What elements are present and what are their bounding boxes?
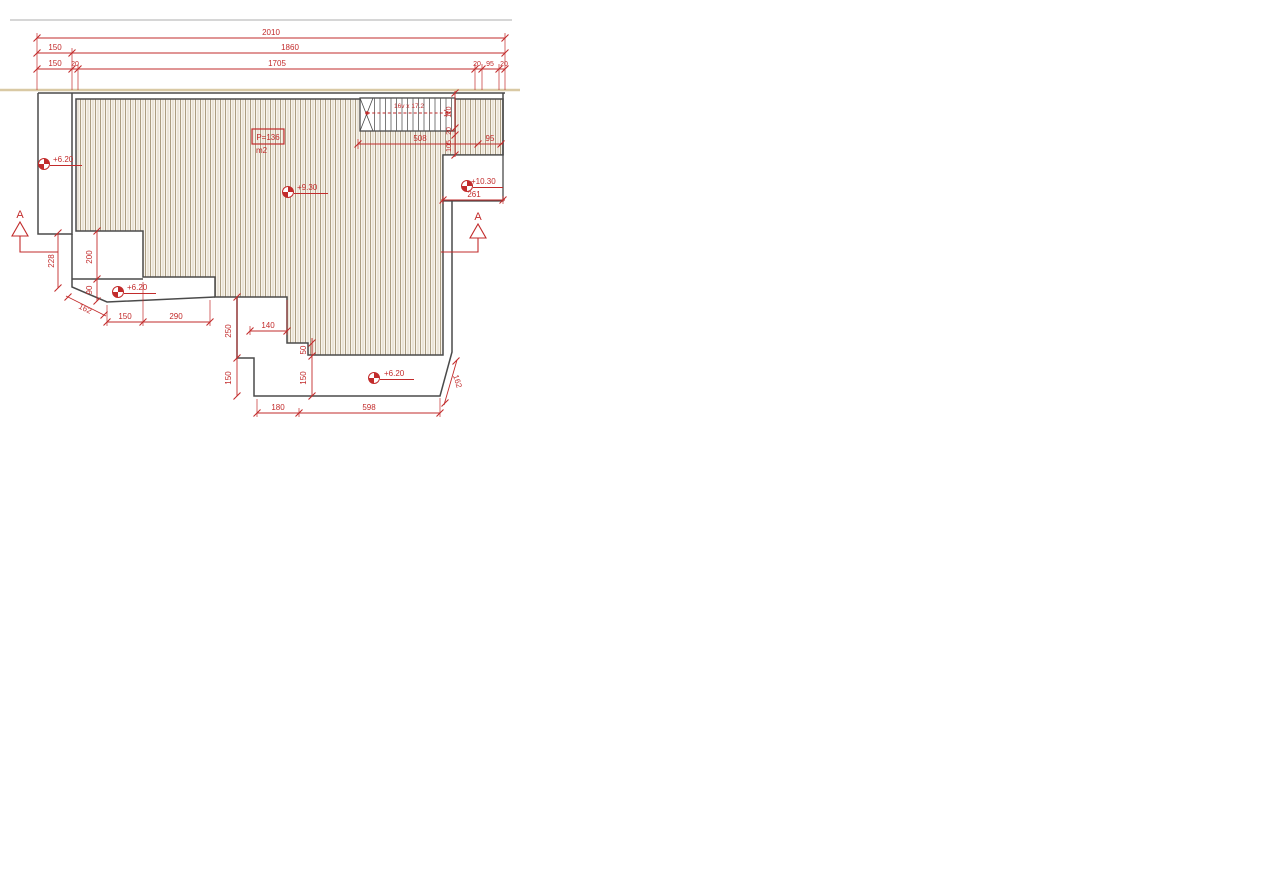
dim-150-step: 150 (299, 371, 308, 385)
level-label-landing: +10.30 (471, 177, 496, 186)
floor-plan-drawing: 16v x 17.2 (0, 0, 1280, 876)
dim-140: 140 (261, 321, 275, 330)
dim-150-row3: 150 (48, 59, 62, 68)
dim-162-right: 162 (451, 374, 464, 390)
dim-105: 105 (446, 140, 453, 152)
dim-95-top: 95 (486, 61, 494, 68)
area-value: P=136 (256, 133, 280, 142)
screenshot-canvas: 16v x 17.2 (0, 0, 1280, 876)
section-triangle-icon (470, 224, 486, 238)
dim-1705: 1705 (268, 59, 286, 68)
level-label-left: +6.20 (53, 155, 74, 164)
hatched-deck-area (76, 99, 503, 355)
dim-110: 110 (446, 106, 453, 117)
dim-598: 598 (362, 403, 376, 412)
dim-20-a: 20 (71, 61, 79, 68)
dim-228: 228 (47, 254, 56, 268)
dim-20-c: 20 (500, 61, 508, 68)
level-label-bottom: +6.20 (384, 369, 405, 378)
dim-508: 508 (413, 134, 427, 143)
dim-20-b: 20 (473, 61, 481, 68)
section-triangle-icon (12, 222, 28, 236)
dim-20-stair: 20 (446, 127, 453, 135)
dim-150-mid: 150 (224, 371, 233, 385)
section-label-left: A (16, 209, 24, 221)
dim-1860: 1860 (281, 43, 299, 52)
dim-50: 50 (299, 345, 308, 354)
dim-tick (101, 312, 108, 319)
level-label-center: +9.30 (297, 183, 318, 192)
dim-200: 200 (85, 250, 94, 264)
stair-label: 16v x 17.2 (394, 103, 424, 110)
dim-tick (65, 294, 72, 301)
dim-290: 290 (169, 312, 183, 321)
dim-150-left: 150 (118, 312, 132, 321)
dim-150-row2: 150 (48, 43, 62, 52)
dim-162-left: 162 (77, 302, 93, 316)
dim-90: 90 (85, 285, 94, 294)
level-label-mid-left: +6.20 (127, 283, 148, 292)
section-marker-a-left (12, 222, 58, 252)
stair: 16v x 17.2 (360, 98, 455, 131)
walking-line-start-dot (365, 111, 369, 115)
dim-250: 250 (224, 324, 233, 338)
section-label-right: A (474, 211, 482, 223)
dim-261: 261 (467, 190, 481, 199)
dim-2010: 2010 (262, 28, 280, 37)
dim-180: 180 (271, 403, 285, 412)
section-marker-a-right (441, 224, 486, 252)
area-unit: m2 (256, 146, 268, 155)
dim-95-stair: 95 (486, 134, 495, 143)
